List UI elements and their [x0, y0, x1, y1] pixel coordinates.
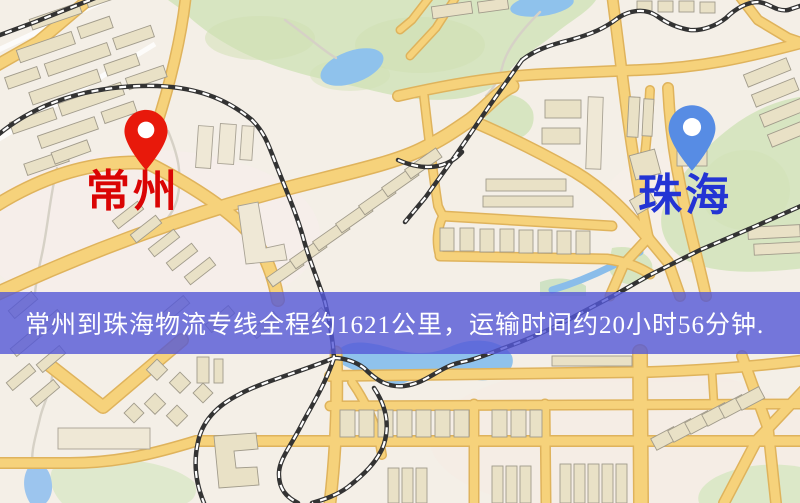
- destination-pin blue-map-pin-icon[interactable]: [667, 103, 717, 173]
- map-tiles: [0, 0, 800, 503]
- origin-city-label: 常州: [86, 170, 180, 214]
- pin-body: [669, 105, 716, 171]
- pin-hole: [138, 122, 155, 139]
- route-info-banner: 常州到珠海物流专线全程约1621公里，运输时间约20小时56分钟.: [0, 292, 800, 354]
- destination-city-label: 珠海: [638, 174, 732, 218]
- pin-hole: [683, 118, 701, 136]
- origin-pin red-map-pin-icon[interactable]: [123, 108, 169, 172]
- route-info-text: 常州到珠海物流专线全程约1621公里，运输时间约20小时56分钟.: [25, 305, 764, 341]
- pin-body: [124, 110, 167, 170]
- map-viewport[interactable]: 常州 珠海 常州到珠海物流专线全程约1621公里，运输时间约20小时56分钟.: [0, 0, 800, 503]
